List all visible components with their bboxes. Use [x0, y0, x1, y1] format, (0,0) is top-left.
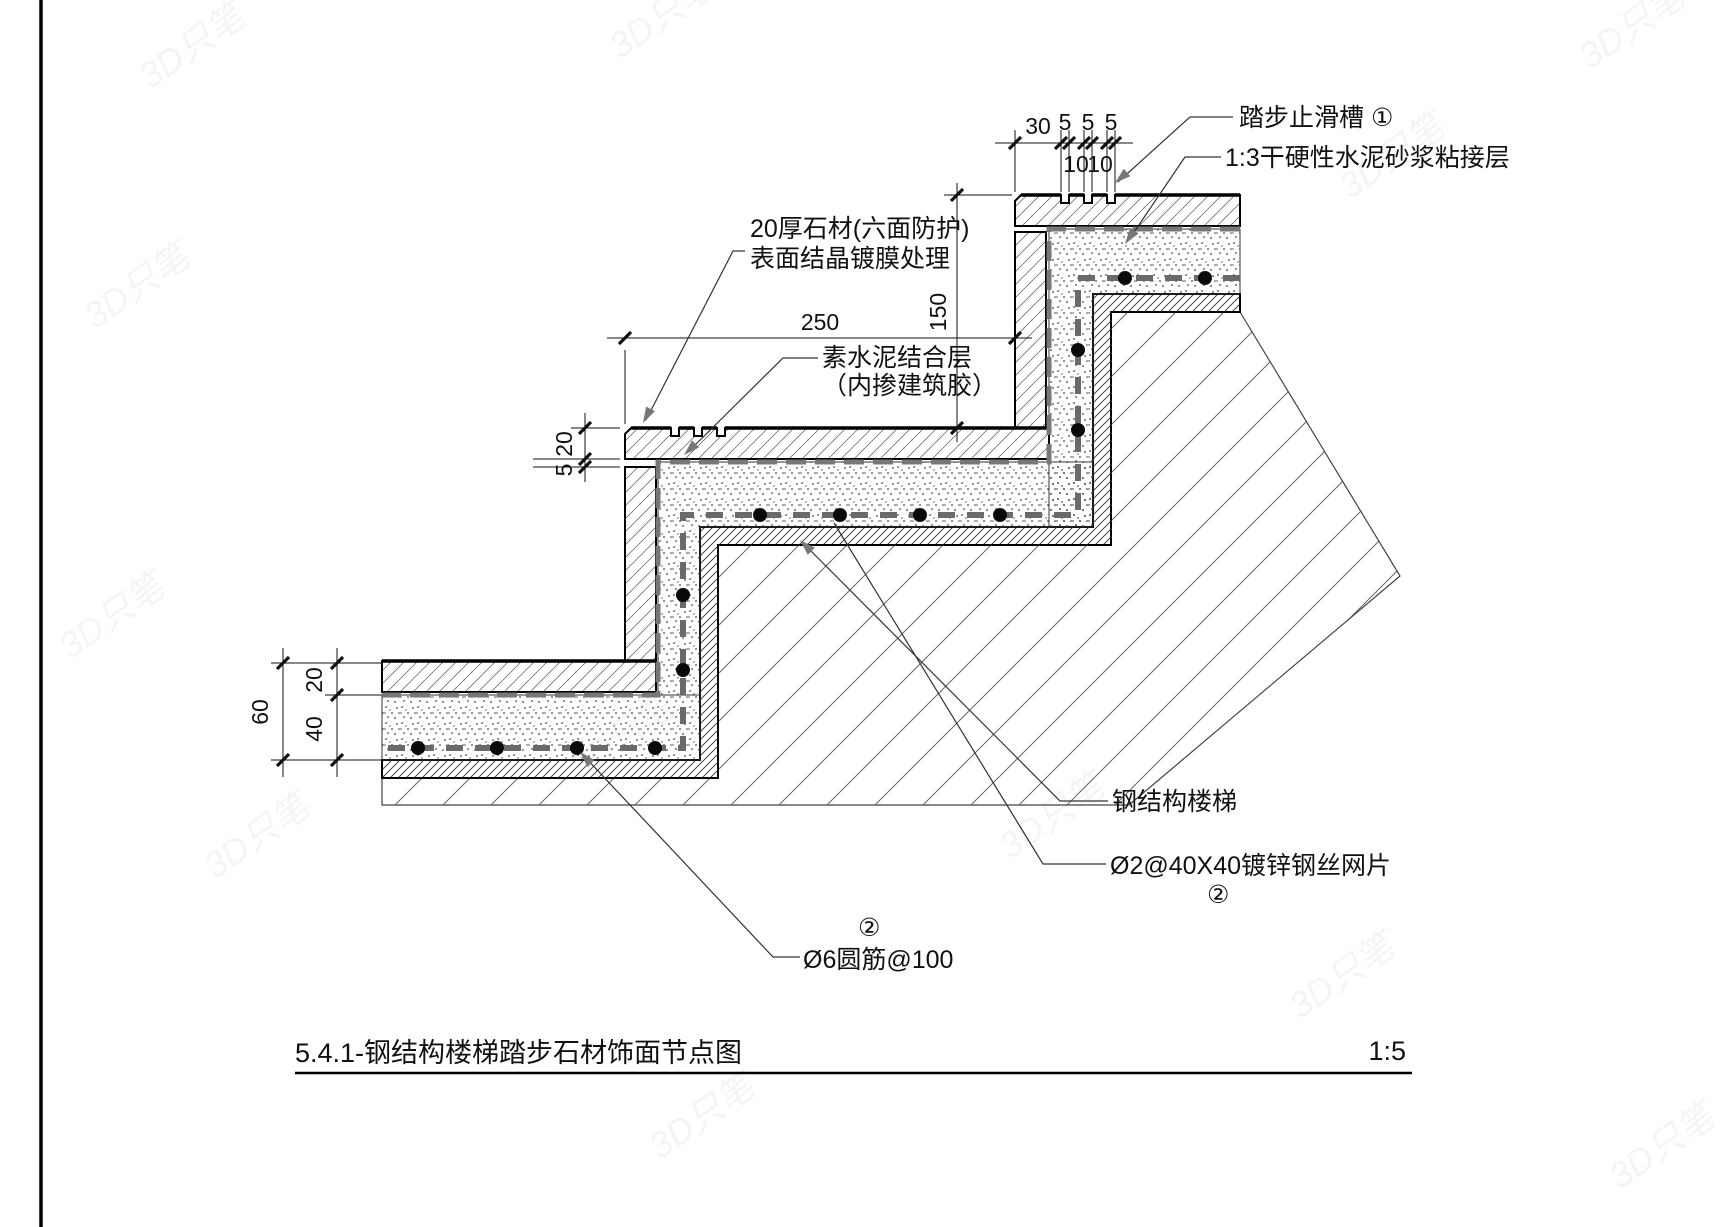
dim-bottom-mortar-text: 40 — [301, 716, 327, 742]
watermark: 3D只笔 — [601, 0, 725, 67]
callout-stone-line2: 表面结晶镀膜处理 — [750, 245, 950, 273]
callout-rebar: Ø6圆筋@100 — [803, 946, 953, 974]
stone-riser-middle — [625, 467, 656, 661]
watermark: 3D只笔 — [1601, 1092, 1725, 1196]
callout-cement-line1: 素水泥结合层 — [822, 344, 972, 372]
stone-tread-middle — [625, 428, 1049, 459]
callout-steel-stair: 钢结构楼梯 — [1112, 788, 1237, 816]
watermark: 3D只笔 — [1571, 0, 1695, 77]
callout-wire-mesh-num: ② — [1207, 881, 1229, 909]
dim-groove-w3: 5 — [1105, 109, 1118, 135]
watermark: 3D只笔 — [641, 1062, 765, 1166]
watermark: 3D只笔 — [1281, 922, 1405, 1026]
dim-groove-offset: 30 — [1025, 113, 1051, 139]
dim-middle-stone-text: 20 — [551, 431, 577, 457]
watermark: 3D只笔 — [196, 782, 320, 886]
dim-groove-gap1: 10 — [1063, 151, 1089, 177]
dim-riser-height-text: 150 — [925, 293, 951, 331]
callout-mortar-bed: 1:3干硬性水泥砂浆粘接层 — [1225, 144, 1510, 172]
stone-tread-bottom — [382, 661, 656, 692]
drawing-sheet: 3D只笔 3D只笔 3D只笔 3D只笔 3D只笔 3D只笔 3D只笔 3D只笔 … — [0, 0, 1734, 1227]
callout-rebar-num: ② — [858, 914, 880, 942]
stone-tread-top — [1015, 195, 1240, 226]
watermark: 3D只笔 — [76, 232, 200, 336]
callout-wire-mesh: Ø2@40X40镀锌钢丝网片 — [1110, 852, 1391, 880]
watermark: 3D只笔 — [51, 562, 175, 666]
callout-antislip: 踏步止滑槽 ① — [1239, 104, 1393, 132]
dim-tread-depth-text: 250 — [801, 309, 839, 335]
dim-middle-joint-text: 5 — [551, 464, 577, 477]
stone-riser-top — [1015, 232, 1046, 428]
callout-stone-line1: 20厚石材(六面防护) — [750, 215, 969, 243]
dim-groove-w1: 5 — [1059, 109, 1072, 135]
title-block: 5.4.1-钢结构楼梯踏步石材饰面节点图 1:5 — [295, 1036, 1412, 1073]
dim-total-left-text: 60 — [247, 699, 273, 725]
callout-cement-line2: （内掺建筑胶） — [822, 372, 997, 400]
stair-detail-drawing: 3D只笔 3D只笔 3D只笔 3D只笔 3D只笔 3D只笔 3D只笔 3D只笔 … — [0, 0, 1734, 1227]
dim-groove-gap2: 10 — [1087, 151, 1113, 177]
drawing-scale: 1:5 — [1368, 1036, 1406, 1066]
drawing-title: 5.4.1-钢结构楼梯踏步石材饰面节点图 — [295, 1038, 742, 1068]
watermark: 3D只笔 — [131, 0, 255, 97]
dim-groove-w2: 5 — [1082, 109, 1095, 135]
dim-bottom-stone-text: 20 — [301, 667, 327, 693]
